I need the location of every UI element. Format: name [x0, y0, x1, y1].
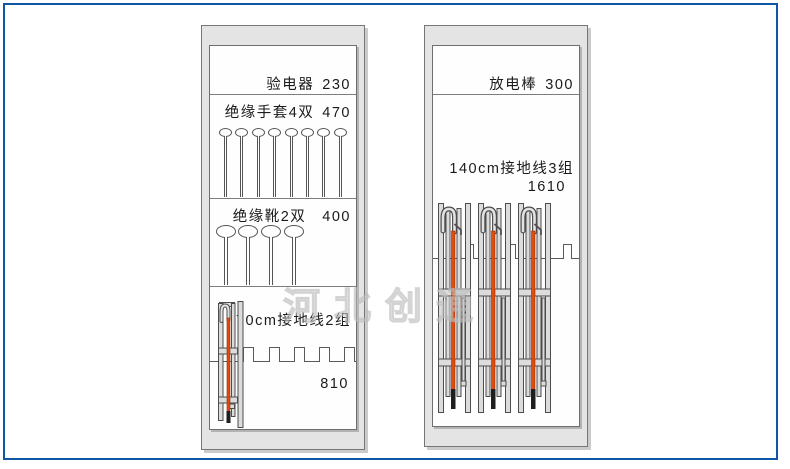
hanger-stem: [292, 237, 296, 285]
section-label: 验电器: [266, 77, 314, 93]
section-value-1610: 1610: [528, 179, 566, 195]
grounding-wire-set: [478, 203, 511, 413]
comb-tooth: [344, 347, 355, 362]
diagram-canvas: 河北创通 验电器230 绝缘手套4双470 绝缘靴2双400: [0, 0, 790, 469]
grounding-wire-set: [438, 203, 471, 413]
outer-blue-border: [3, 3, 778, 460]
section-discharge-rod: 放电棒300: [489, 73, 574, 94]
cabinet-right: 放电棒300 140cm接地线3组 1610: [424, 25, 588, 447]
shelf-divider: [210, 198, 356, 199]
section-label: 绝缘靴2双: [233, 209, 307, 225]
cabinet-left-panel: 验电器230 绝缘手套4双470 绝缘靴2双400: [209, 45, 357, 430]
section-value: 810: [320, 376, 349, 392]
section-label: 放电棒: [489, 77, 537, 93]
section-grounding-140cm: 140cm接地线3组: [449, 157, 574, 178]
section-label: 绝缘手套4双: [225, 105, 315, 121]
comb-tooth: [563, 244, 572, 259]
hanger-stem: [273, 136, 276, 197]
hanger-stem: [240, 136, 243, 197]
section-label: 140cm接地线3组: [449, 161, 574, 177]
section-value: 400: [322, 209, 351, 225]
hanger-stem: [257, 136, 260, 197]
grounding-wire-set: [218, 301, 244, 428]
comb-tooth: [269, 347, 280, 362]
hanger-stem: [306, 136, 309, 197]
shelf-divider: [433, 94, 579, 95]
hanger-stem: [339, 136, 342, 197]
section-voltage-detector: 验电器230: [266, 73, 351, 94]
comb-tooth: [294, 347, 305, 362]
section-value-810: 810: [320, 376, 349, 392]
comb-tooth: [243, 347, 254, 362]
hanger-stem: [269, 237, 273, 285]
section-insulated-boots: 绝缘靴2双400: [233, 205, 351, 226]
section-grounding-70cm: 70cm接地线2组: [236, 309, 351, 330]
section-value: 230: [322, 77, 351, 93]
hanger-stem: [322, 136, 325, 197]
cabinet-right-panel: 放电棒300 140cm接地线3组 1610: [432, 45, 580, 427]
shelf-divider: [210, 94, 356, 95]
hanger-stem: [224, 136, 227, 197]
hanger-stem: [246, 237, 250, 285]
shelf-divider: [210, 286, 356, 287]
section-value: 1610: [528, 179, 566, 195]
grounding-wire-set: [518, 203, 551, 413]
cabinet-left: 验电器230 绝缘手套4双470 绝缘靴2双400: [201, 25, 365, 450]
section-insulated-gloves: 绝缘手套4双470: [225, 101, 351, 122]
section-label: 70cm接地线2组: [236, 313, 351, 329]
hanger-stem: [290, 136, 293, 197]
section-value: 300: [545, 77, 574, 93]
section-value: 470: [322, 105, 351, 121]
hanger-stem: [224, 237, 228, 285]
comb-tooth: [319, 347, 330, 362]
